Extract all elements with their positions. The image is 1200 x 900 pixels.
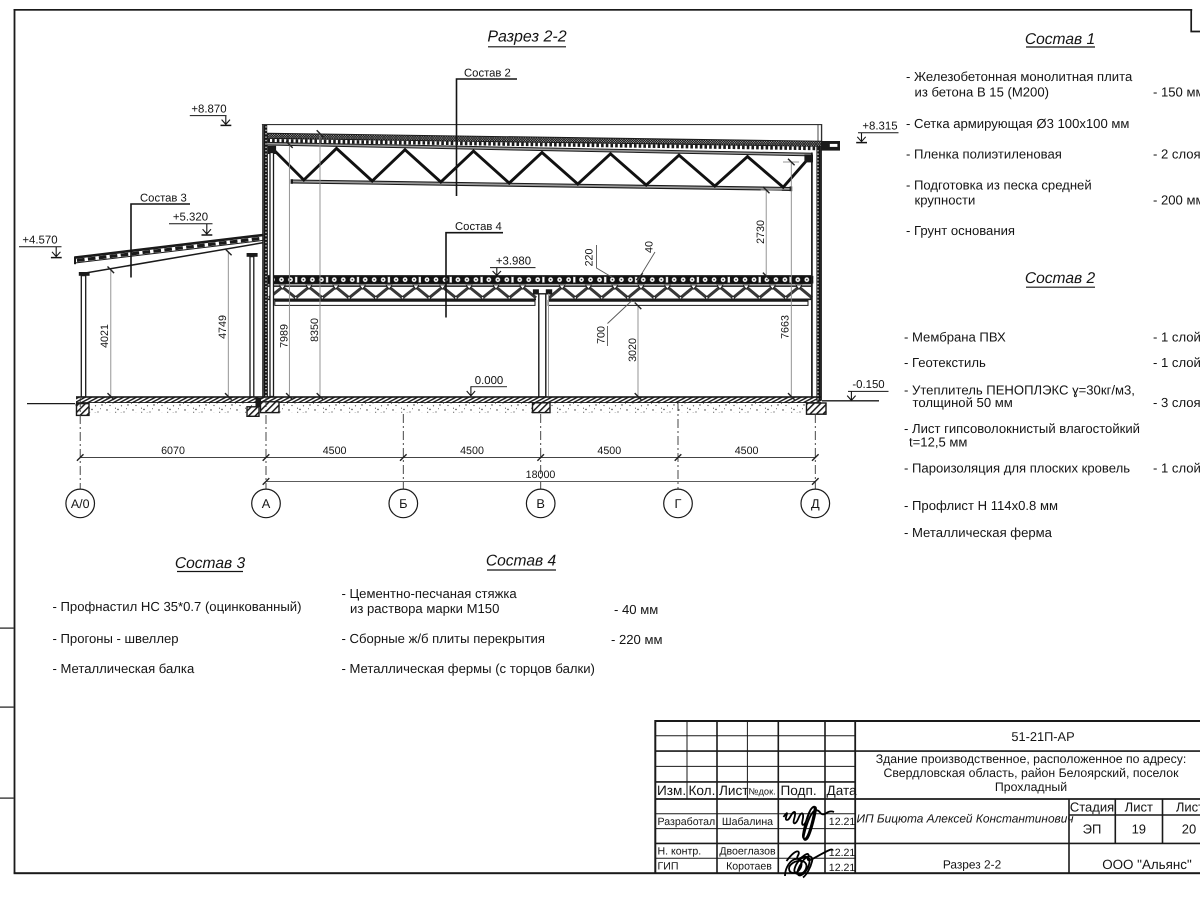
svg-text:Лист: Лист <box>1125 799 1153 814</box>
svg-text:- Железобетонная монолитная п: - Железобетонная монолитная плита <box>906 69 1133 84</box>
svg-text:3020: 3020 <box>627 338 639 362</box>
svg-text:4500: 4500 <box>597 445 621 457</box>
svg-text:- 1 слой: - 1 слой <box>1153 330 1200 345</box>
svg-text:Состав 4: Состав 4 <box>486 553 557 570</box>
svg-text:№док.: №док. <box>749 786 776 796</box>
svg-text:Г: Г <box>675 496 682 511</box>
svg-text:Двоеглазов: Двоеглазов <box>719 845 776 857</box>
svg-text:- Пароизоляция для плоских кро: - Пароизоляция для плоских кровель <box>904 461 1130 476</box>
svg-text:700: 700 <box>596 326 608 344</box>
svg-text:20: 20 <box>1182 821 1196 836</box>
svg-text:-0.150: -0.150 <box>852 379 884 391</box>
svg-text:12.21: 12.21 <box>829 862 856 874</box>
svg-text:19: 19 <box>1132 821 1146 836</box>
svg-text:- 150 мм: - 150 мм <box>1153 85 1200 100</box>
svg-text:- Сетка армирующая Ø3 100х100: - Сетка армирующая Ø3 100х100 мм <box>906 116 1129 131</box>
svg-text:Н. контр.: Н. контр. <box>658 845 702 857</box>
svg-text:В: В <box>536 496 545 511</box>
svg-text:ИП Бицюта Алексей Константинов: ИП Бицюта Алексей Константинович <box>856 812 1073 826</box>
svg-text:4500: 4500 <box>735 445 759 457</box>
svg-text:Дата: Дата <box>827 783 858 798</box>
svg-text:- Цементно-песчаная стяжка: - Цементно-песчаная стяжка <box>342 586 518 601</box>
svg-text:Разрез 2-2: Разрез 2-2 <box>487 29 566 46</box>
svg-text:Листов: Листов <box>1176 799 1200 814</box>
svg-text:40: 40 <box>644 241 656 253</box>
svg-text:7663: 7663 <box>780 315 792 339</box>
svg-text:Шабалина: Шабалина <box>722 816 773 828</box>
svg-text:Кол.: Кол. <box>689 783 716 798</box>
svg-text:Д: Д <box>811 496 820 511</box>
svg-text:Подп.: Подп. <box>781 783 817 798</box>
svg-text:из раствора марки М150: из раствора марки М150 <box>350 601 499 616</box>
svg-text:12.21: 12.21 <box>829 847 856 859</box>
svg-text:- 200 мм: - 200 мм <box>1153 193 1200 208</box>
svg-text:- Грунт основания: - Грунт основания <box>906 223 1015 238</box>
svg-text:- Металлическая ферма: - Металлическая ферма <box>904 525 1053 540</box>
svg-text:ЭП: ЭП <box>1083 821 1102 836</box>
svg-text:Состав 1: Состав 1 <box>1025 31 1095 48</box>
svg-text:12.21: 12.21 <box>829 816 856 828</box>
svg-text:толщиной 50 мм: толщиной 50 мм <box>913 395 1013 410</box>
svg-text:+5.320: +5.320 <box>173 212 208 224</box>
svg-text:- Геотекстиль: - Геотекстиль <box>904 355 986 370</box>
svg-text:0.000: 0.000 <box>475 375 504 387</box>
svg-text:А/0: А/0 <box>71 497 90 511</box>
svg-text:Свердловская область, район Бе: Свердловская область, район Белоярский, … <box>884 766 1180 780</box>
svg-text:Изм.: Изм. <box>657 783 686 798</box>
svg-text:4500: 4500 <box>323 445 347 457</box>
svg-text:- Пленка полиэтиленовая: - Пленка полиэтиленовая <box>906 147 1062 162</box>
svg-text:- 220 мм: - 220 мм <box>611 632 663 647</box>
svg-text:- 2 слоя: - 2 слоя <box>1153 147 1200 162</box>
svg-text:крупности: крупности <box>915 193 976 208</box>
svg-text:51-21П-АР: 51-21П-АР <box>1011 729 1074 744</box>
svg-text:Состав 4: Состав 4 <box>455 221 502 233</box>
svg-text:- Металлическая фермы (с торцо: - Металлическая фермы (с торцов балки) <box>342 661 595 676</box>
svg-text:Прохладный: Прохладный <box>995 780 1067 794</box>
svg-text:220: 220 <box>584 249 596 267</box>
svg-text:Б: Б <box>399 496 407 511</box>
svg-text:Здание производственное, распо: Здание производственное, расположенное п… <box>876 752 1187 766</box>
svg-text:4021: 4021 <box>99 324 111 348</box>
svg-text:- Прогоны - швеллер: - Прогоны - швеллер <box>53 631 179 646</box>
svg-text:- Сборные ж/б плиты перекрытия: - Сборные ж/б плиты перекрытия <box>342 631 545 646</box>
svg-text:Состав 3: Состав 3 <box>175 555 246 572</box>
svg-text:А: А <box>262 496 271 511</box>
svg-text:- 3 слоя: - 3 слоя <box>1153 395 1200 410</box>
svg-text:t=12,5 мм: t=12,5 мм <box>909 434 967 449</box>
svg-text:+4.570: +4.570 <box>22 235 57 247</box>
svg-text:Состав 2: Состав 2 <box>464 67 511 79</box>
svg-text:Состав 3: Состав 3 <box>140 192 187 204</box>
svg-text:- 1 слой: - 1 слой <box>1153 461 1200 476</box>
svg-text:Разрез 2-2: Разрез 2-2 <box>943 858 1002 872</box>
svg-text:- Мембрана ПВХ: - Мембрана ПВХ <box>904 330 1006 345</box>
svg-text:Коротаев: Коротаев <box>726 860 772 872</box>
svg-text:Стадия: Стадия <box>1070 799 1114 814</box>
svg-text:- Профнастил НС 35*0.7 (оцинко: - Профнастил НС 35*0.7 (оцинкованный) <box>53 599 302 614</box>
svg-text:4500: 4500 <box>460 445 484 457</box>
svg-text:- 1 слой: - 1 слой <box>1153 355 1200 370</box>
svg-text:- Подготовка из песка средней: - Подготовка из песка средней <box>906 178 1092 193</box>
svg-text:Разработал: Разработал <box>658 816 716 828</box>
svg-text:ООО "Альянс": ООО "Альянс" <box>1102 857 1192 872</box>
svg-text:Состав 2: Состав 2 <box>1025 270 1096 287</box>
svg-text:из бетона В 15 (М200): из бетона В 15 (М200) <box>915 85 1050 100</box>
svg-text:6070: 6070 <box>161 445 185 457</box>
svg-text:4749: 4749 <box>217 315 229 339</box>
svg-text:+3.980: +3.980 <box>496 255 531 267</box>
svg-text:2730: 2730 <box>755 220 767 244</box>
svg-text:ГИП: ГИП <box>658 860 679 872</box>
svg-text:Лист: Лист <box>719 783 749 798</box>
svg-text:- Металлическая балка: - Металлическая балка <box>53 661 195 676</box>
svg-text:7989: 7989 <box>279 324 291 348</box>
svg-text:8350: 8350 <box>309 318 321 342</box>
svg-text:+8.315: +8.315 <box>862 121 897 133</box>
svg-text:- 40 мм: - 40 мм <box>614 602 658 617</box>
svg-text:+8.870: +8.870 <box>191 104 226 116</box>
svg-text:18000: 18000 <box>526 469 556 481</box>
svg-text:- Профлист Н 114х0.8 мм: - Профлист Н 114х0.8 мм <box>904 498 1058 513</box>
